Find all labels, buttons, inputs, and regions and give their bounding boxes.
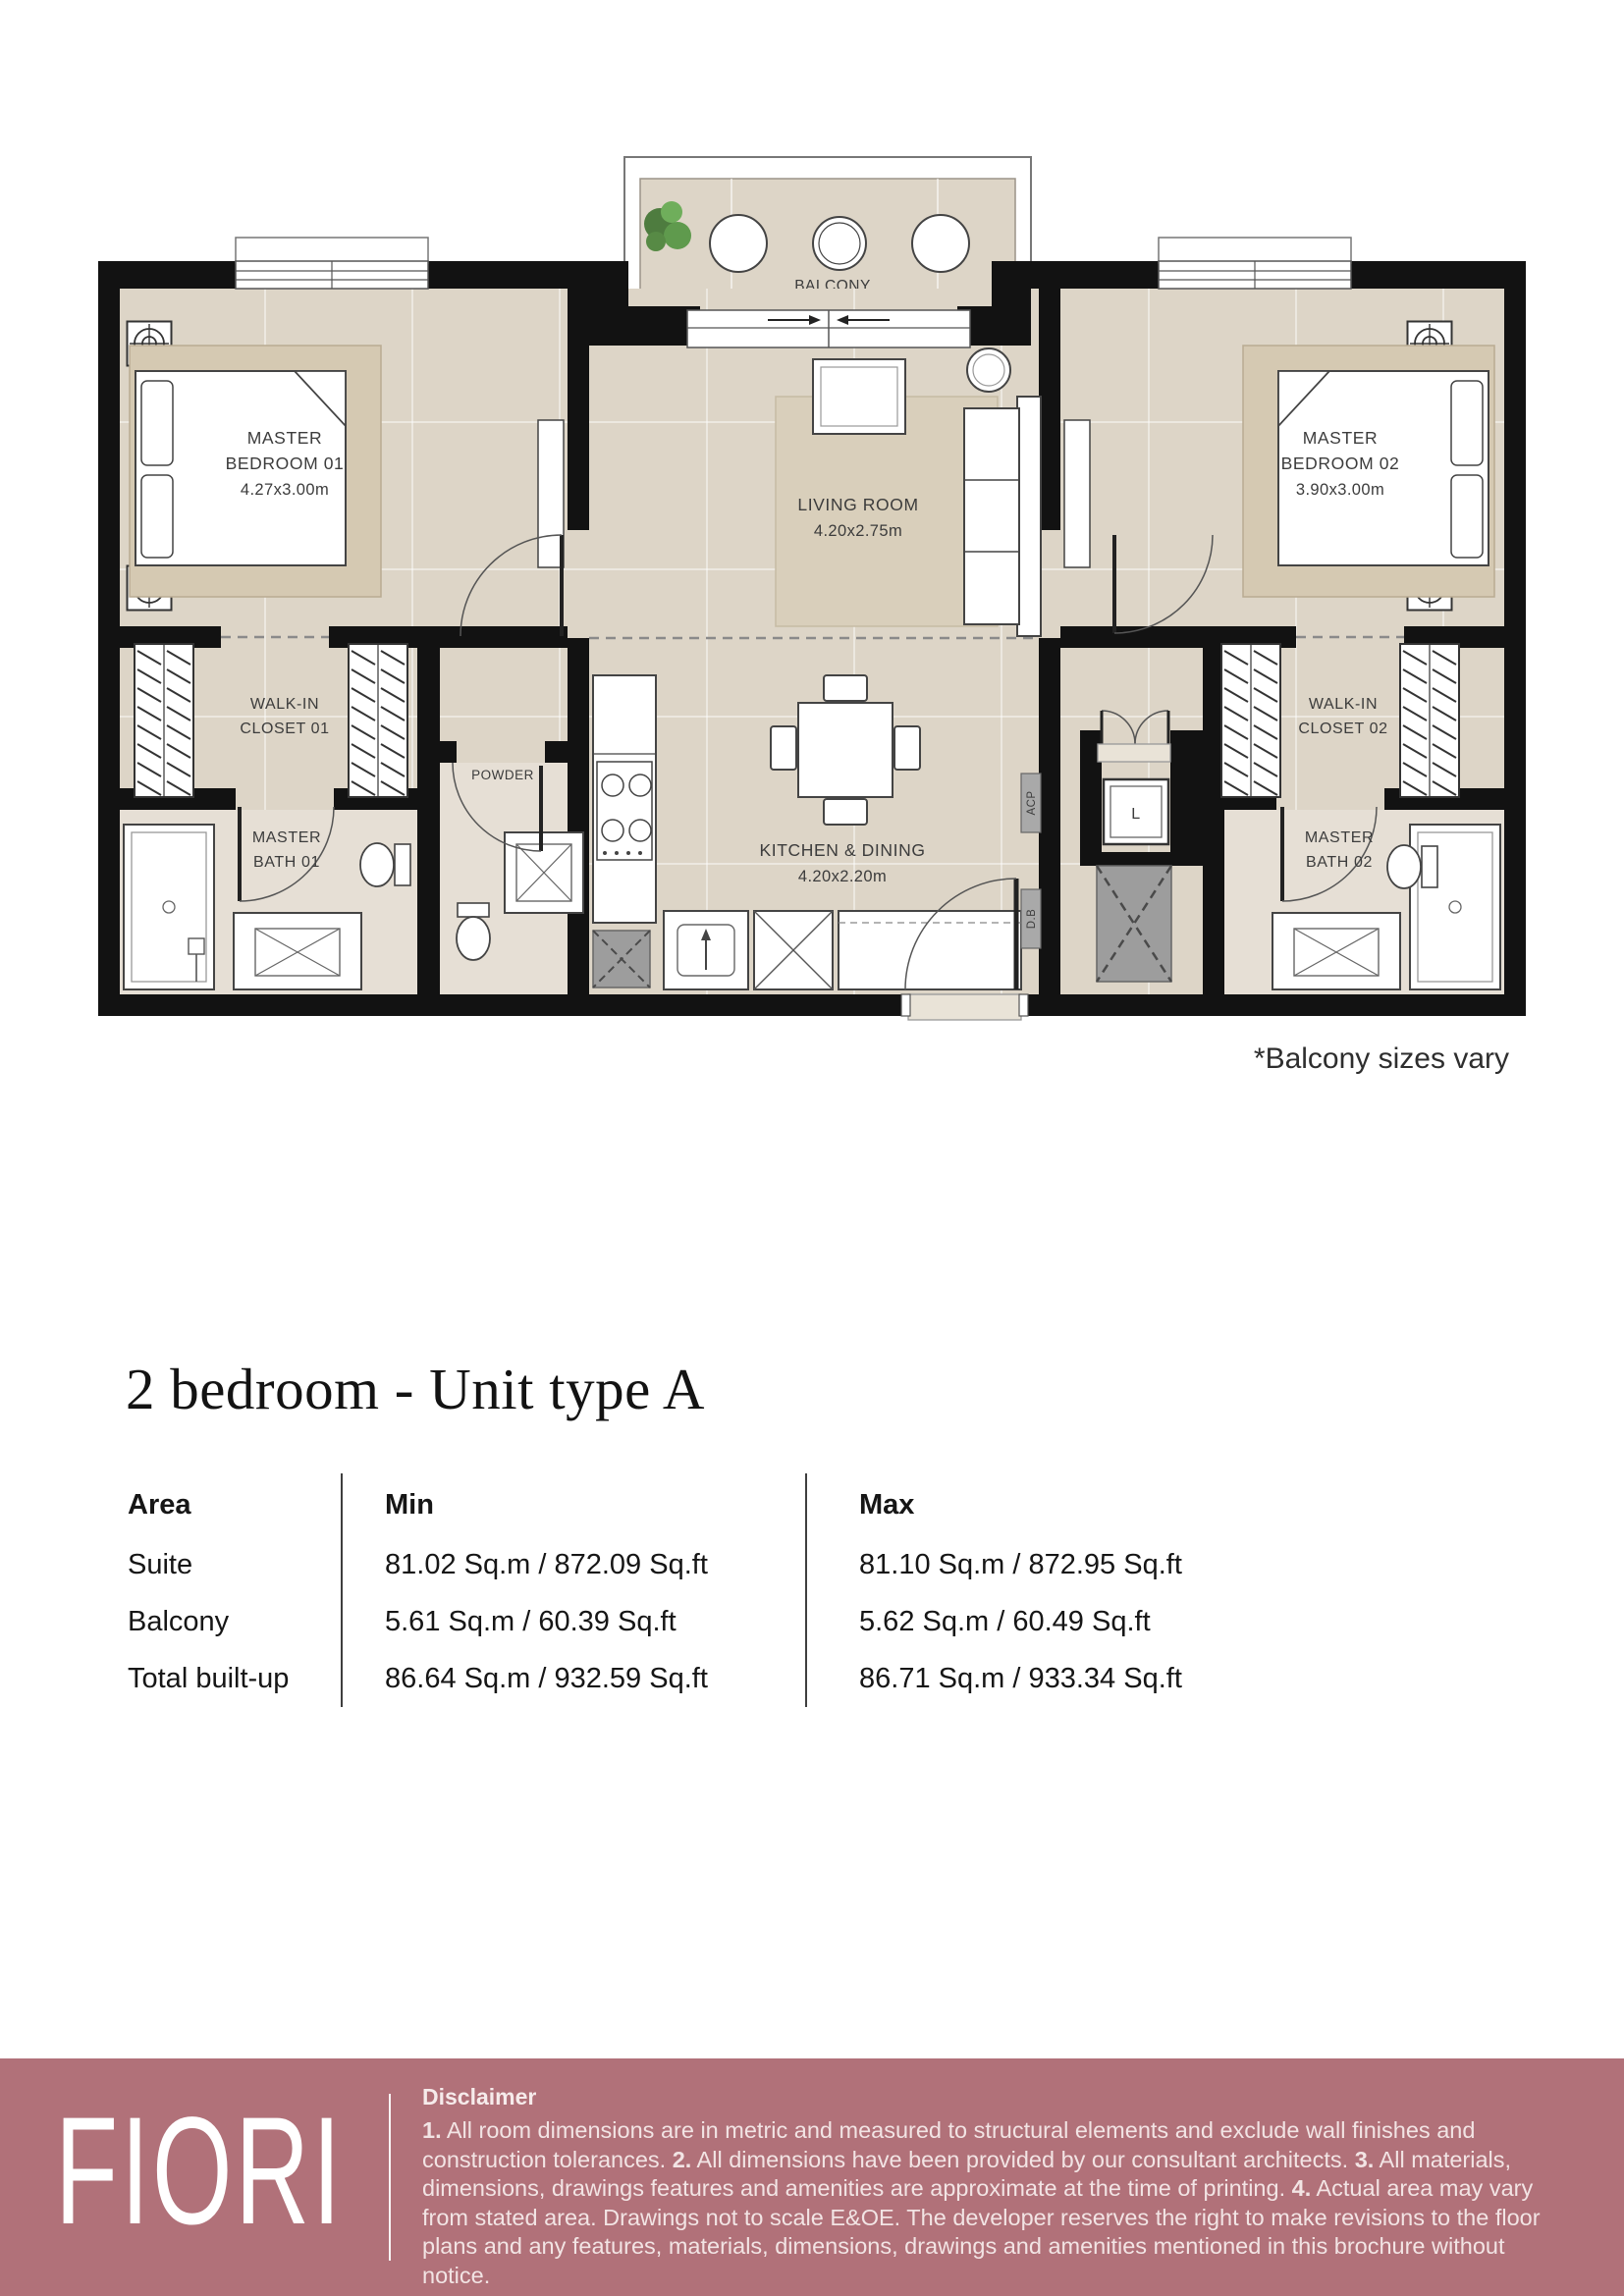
sofa xyxy=(964,397,1041,636)
disclaimer-segment: All dimensions have been provided by our… xyxy=(691,2147,1354,2172)
room-label: BEDROOM 02 xyxy=(1281,454,1400,473)
service-shaft xyxy=(1097,866,1171,982)
table-row-suite-max: 81.10 Sq.m / 872.95 Sq.ft xyxy=(805,1536,1286,1593)
vanity xyxy=(234,913,361,989)
toilet xyxy=(360,843,410,886)
vanity xyxy=(505,832,583,913)
sink-unit xyxy=(664,911,748,989)
toilet xyxy=(457,903,490,960)
room-label: WALK-IN xyxy=(1309,696,1378,713)
footer: FIORI Disclaimer 1. All room dimensions … xyxy=(0,2058,1624,2296)
db-tag: D.B xyxy=(1021,889,1041,948)
room-label: WALK-IN xyxy=(250,696,319,713)
dresser xyxy=(1064,420,1090,567)
col-header-min: Min xyxy=(341,1473,805,1536)
room-label: BEDROOM 01 xyxy=(226,454,345,473)
table-row-suite-area: Suite xyxy=(128,1536,341,1593)
window-bedroom2 xyxy=(1159,238,1351,289)
brochure-page: BALCONY xyxy=(0,0,1624,2296)
shower xyxy=(124,825,214,989)
area-table: Area Min Max Suite 81.02 Sq.m / 872.09 S… xyxy=(128,1473,1286,1707)
room-dims: 4.20x2.20m xyxy=(798,868,887,885)
room-label: MASTER xyxy=(247,428,323,448)
table-row-balcony-max: 5.62 Sq.m / 60.49 Sq.ft xyxy=(805,1593,1286,1650)
acp-label: ACP xyxy=(1026,791,1038,816)
room-dims: 3.90x3.00m xyxy=(1296,481,1384,499)
hob xyxy=(597,762,652,860)
acp-tag: ACP xyxy=(1021,774,1041,832)
page-title: 2 bedroom - Unit type A xyxy=(126,1356,705,1423)
room-label: CLOSET 01 xyxy=(240,721,329,737)
table-row-balcony-area: Balcony xyxy=(128,1593,341,1650)
db-label: D.B xyxy=(1026,909,1038,929)
vanity xyxy=(1272,913,1400,989)
disclaimer-num: 2. xyxy=(673,2147,692,2172)
balcony-sliding-door xyxy=(687,310,970,347)
room-label: MASTER xyxy=(1305,829,1374,846)
fiori-logo-text: FIORI xyxy=(55,2086,344,2257)
room-label: MASTER xyxy=(1303,428,1379,448)
lift-label: L xyxy=(1131,806,1141,823)
closet-rail xyxy=(349,644,407,797)
room-label: BATH 02 xyxy=(1306,854,1373,871)
room-label: KITCHEN & DINING xyxy=(759,840,925,860)
table-row-total-area: Total built-up xyxy=(128,1650,341,1707)
table-row-total-min: 86.64 Sq.m / 932.59 Sq.ft xyxy=(341,1650,805,1707)
disclaimer-num: 4. xyxy=(1292,2175,1312,2201)
room-dims: 4.20x2.75m xyxy=(814,522,902,540)
disclaimer-title: Disclaimer xyxy=(422,2084,1569,2110)
table-row-total-max: 86.71 Sq.m / 933.34 Sq.ft xyxy=(805,1650,1286,1707)
footer-divider xyxy=(389,2094,391,2261)
balcony-furniture xyxy=(710,215,969,272)
room-label: CLOSET 02 xyxy=(1298,721,1387,737)
floor-plan: BALCONY xyxy=(0,0,1624,1129)
closet-rail xyxy=(135,644,193,797)
room-label: POWDER xyxy=(471,768,534,782)
balcony-note: *Balcony sizes vary xyxy=(1254,1042,1509,1076)
room-label: BATH 01 xyxy=(253,854,320,871)
room-label: MASTER xyxy=(252,829,321,846)
disclaimer-num: 1. xyxy=(422,2117,442,2143)
table-row-suite-min: 81.02 Sq.m / 872.09 Sq.ft xyxy=(341,1536,805,1593)
closet-rail xyxy=(1221,644,1280,797)
disclaimer-block: Disclaimer 1. All room dimensions are in… xyxy=(422,2084,1569,2290)
closet-rail xyxy=(1400,644,1459,797)
disclaimer-text: 1. All room dimensions are in metric and… xyxy=(422,2116,1569,2290)
room-label: LIVING ROOM xyxy=(797,495,918,514)
col-header-max: Max xyxy=(805,1473,1286,1536)
armchair xyxy=(813,359,905,434)
table-row-balcony-min: 5.61 Sq.m / 60.39 Sq.ft xyxy=(341,1593,805,1650)
room-dims: 4.27x3.00m xyxy=(241,481,329,499)
fiori-logo: FIORI xyxy=(35,2058,379,2296)
toilet xyxy=(1387,845,1437,888)
col-header-area: Area xyxy=(128,1473,341,1536)
appliance xyxy=(754,911,833,989)
window-bedroom1 xyxy=(236,238,428,289)
disclaimer-num: 3. xyxy=(1355,2147,1375,2172)
